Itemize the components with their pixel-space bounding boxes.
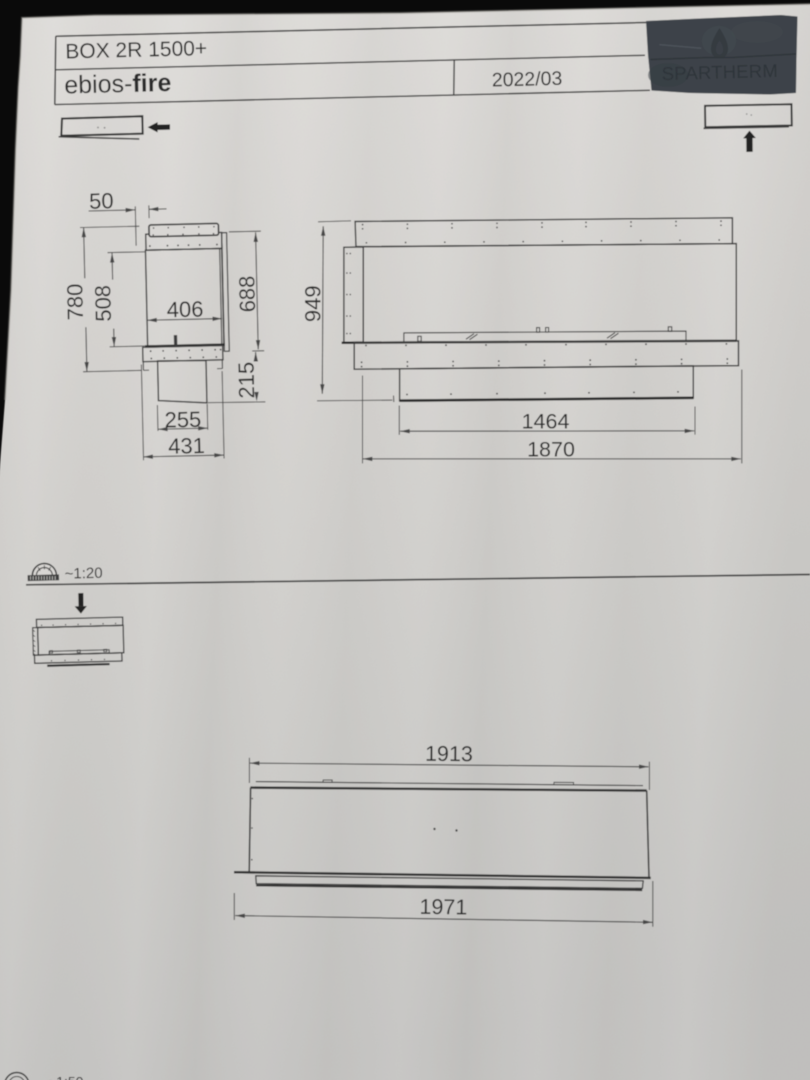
svg-text:406: 406 xyxy=(166,296,203,322)
svg-text:255: 255 xyxy=(164,407,201,433)
svg-text:688: 688 xyxy=(234,275,260,312)
svg-text:1971: 1971 xyxy=(419,895,467,920)
svg-text:508: 508 xyxy=(90,285,116,322)
svg-text:50: 50 xyxy=(89,188,114,214)
svg-text:~1:20: ~1:20 xyxy=(65,565,103,583)
svg-text:BOX 2R 1500+: BOX 2R 1500+ xyxy=(65,37,207,63)
svg-text:1870: 1870 xyxy=(527,437,575,461)
svg-text:~1:50: ~1:50 xyxy=(48,1074,84,1080)
svg-text:215: 215 xyxy=(233,361,259,398)
svg-text:2022/03: 2022/03 xyxy=(492,68,563,92)
svg-text:949: 949 xyxy=(300,285,325,322)
svg-text:431: 431 xyxy=(168,433,205,459)
svg-text:1913: 1913 xyxy=(425,742,473,766)
svg-text:SPARTHERM: SPARTHERM xyxy=(661,60,778,84)
svg-text:1464: 1464 xyxy=(522,410,570,434)
svg-text:780: 780 xyxy=(62,283,88,320)
svg-text:ebios-fire: ebios-fire xyxy=(64,69,172,100)
